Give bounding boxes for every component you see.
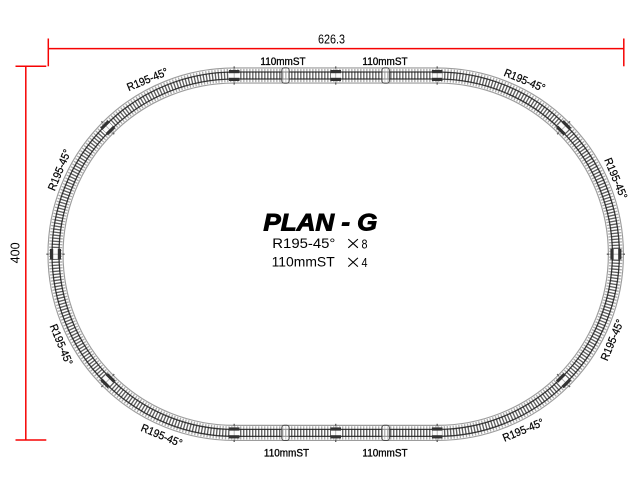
svg-text:110mmST: 110mmST: [362, 448, 407, 460]
svg-text:110mmST: 110mmST: [260, 56, 305, 68]
svg-text:8: 8: [362, 237, 368, 251]
svg-text:400: 400: [9, 242, 23, 263]
svg-text:PLAN - G: PLAN - G: [263, 210, 377, 237]
svg-text:110mmST: 110mmST: [264, 448, 309, 460]
svg-text:110mmST: 110mmST: [272, 254, 336, 270]
svg-text:R195-45°: R195-45°: [272, 235, 335, 251]
svg-text:626.3: 626.3: [318, 32, 345, 47]
svg-text:4: 4: [362, 256, 368, 270]
svg-text:110mmST: 110mmST: [362, 56, 407, 68]
